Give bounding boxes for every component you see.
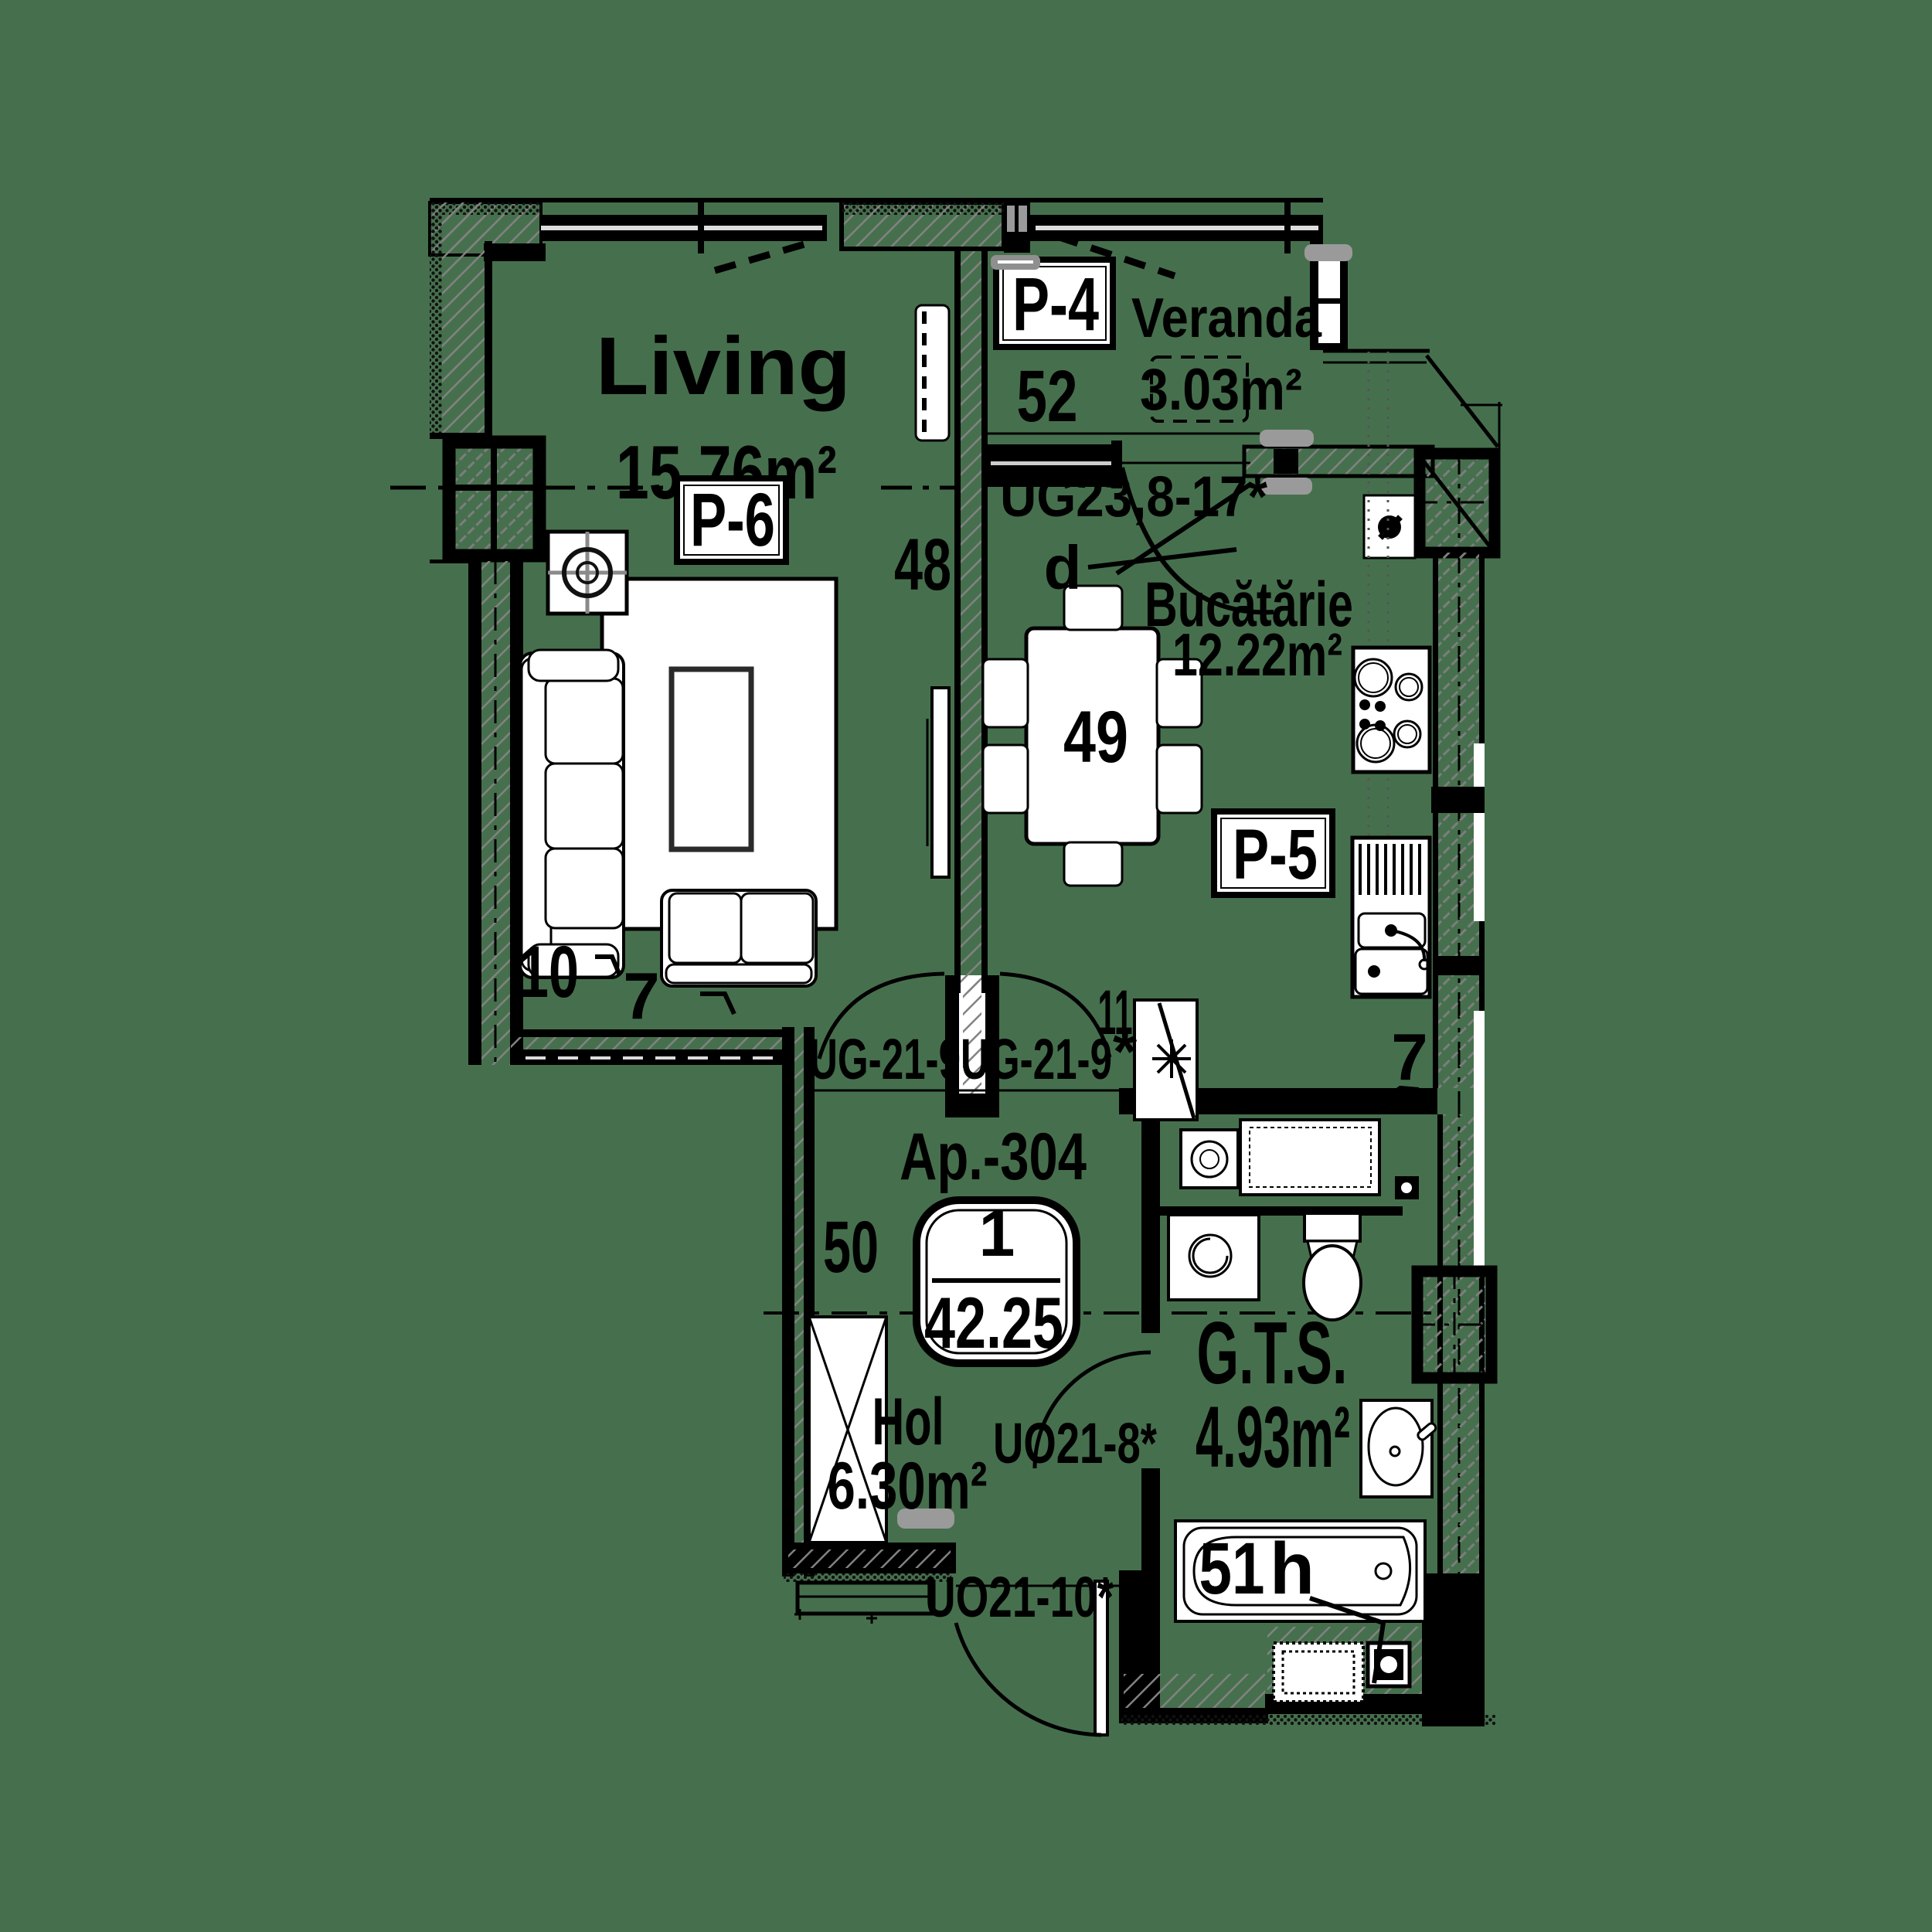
svg-text:Veranda: Veranda <box>1131 287 1322 349</box>
svg-text:UO21-10*: UO21-10* <box>925 1565 1114 1629</box>
svg-text:UG-21-9UG-21-9: UG-21-9UG-21-9 <box>809 1027 1112 1091</box>
svg-text:d: d <box>1044 533 1082 602</box>
svg-text:Living: Living <box>596 321 851 412</box>
svg-text:50: 50 <box>823 1206 879 1288</box>
svg-text:7: 7 <box>623 960 659 1033</box>
svg-text:Ap.-304: Ap.-304 <box>900 1120 1087 1194</box>
svg-text:h: h <box>1270 1528 1315 1610</box>
svg-text:P-5: P-5 <box>1233 815 1318 894</box>
svg-text:51: 51 <box>1199 1528 1265 1610</box>
svg-text:52: 52 <box>1017 355 1078 437</box>
svg-text:42.25: 42.25 <box>924 1282 1063 1363</box>
svg-text:12.22m²: 12.22m² <box>1172 621 1342 689</box>
svg-text:6.30m²: 6.30m² <box>828 1449 988 1523</box>
svg-text:7: 7 <box>1391 1021 1427 1094</box>
svg-text:1: 1 <box>979 1197 1015 1270</box>
svg-text:G.T.S.: G.T.S. <box>1197 1304 1348 1403</box>
svg-text:P-4: P-4 <box>1012 262 1099 346</box>
svg-text:49: 49 <box>1063 696 1128 778</box>
svg-text:UO21-8*: UO21-8* <box>993 1411 1157 1475</box>
svg-text:4.93m²: 4.93m² <box>1196 1389 1350 1485</box>
svg-text:3.03m²: 3.03m² <box>1140 357 1302 423</box>
svg-text:Hol: Hol <box>872 1385 944 1459</box>
svg-text:P-6: P-6 <box>690 478 775 562</box>
svg-text:48: 48 <box>894 524 951 606</box>
svg-text:10: 10 <box>519 931 579 1013</box>
svg-text:UG23,8-17*: UG23,8-17* <box>1000 464 1267 529</box>
